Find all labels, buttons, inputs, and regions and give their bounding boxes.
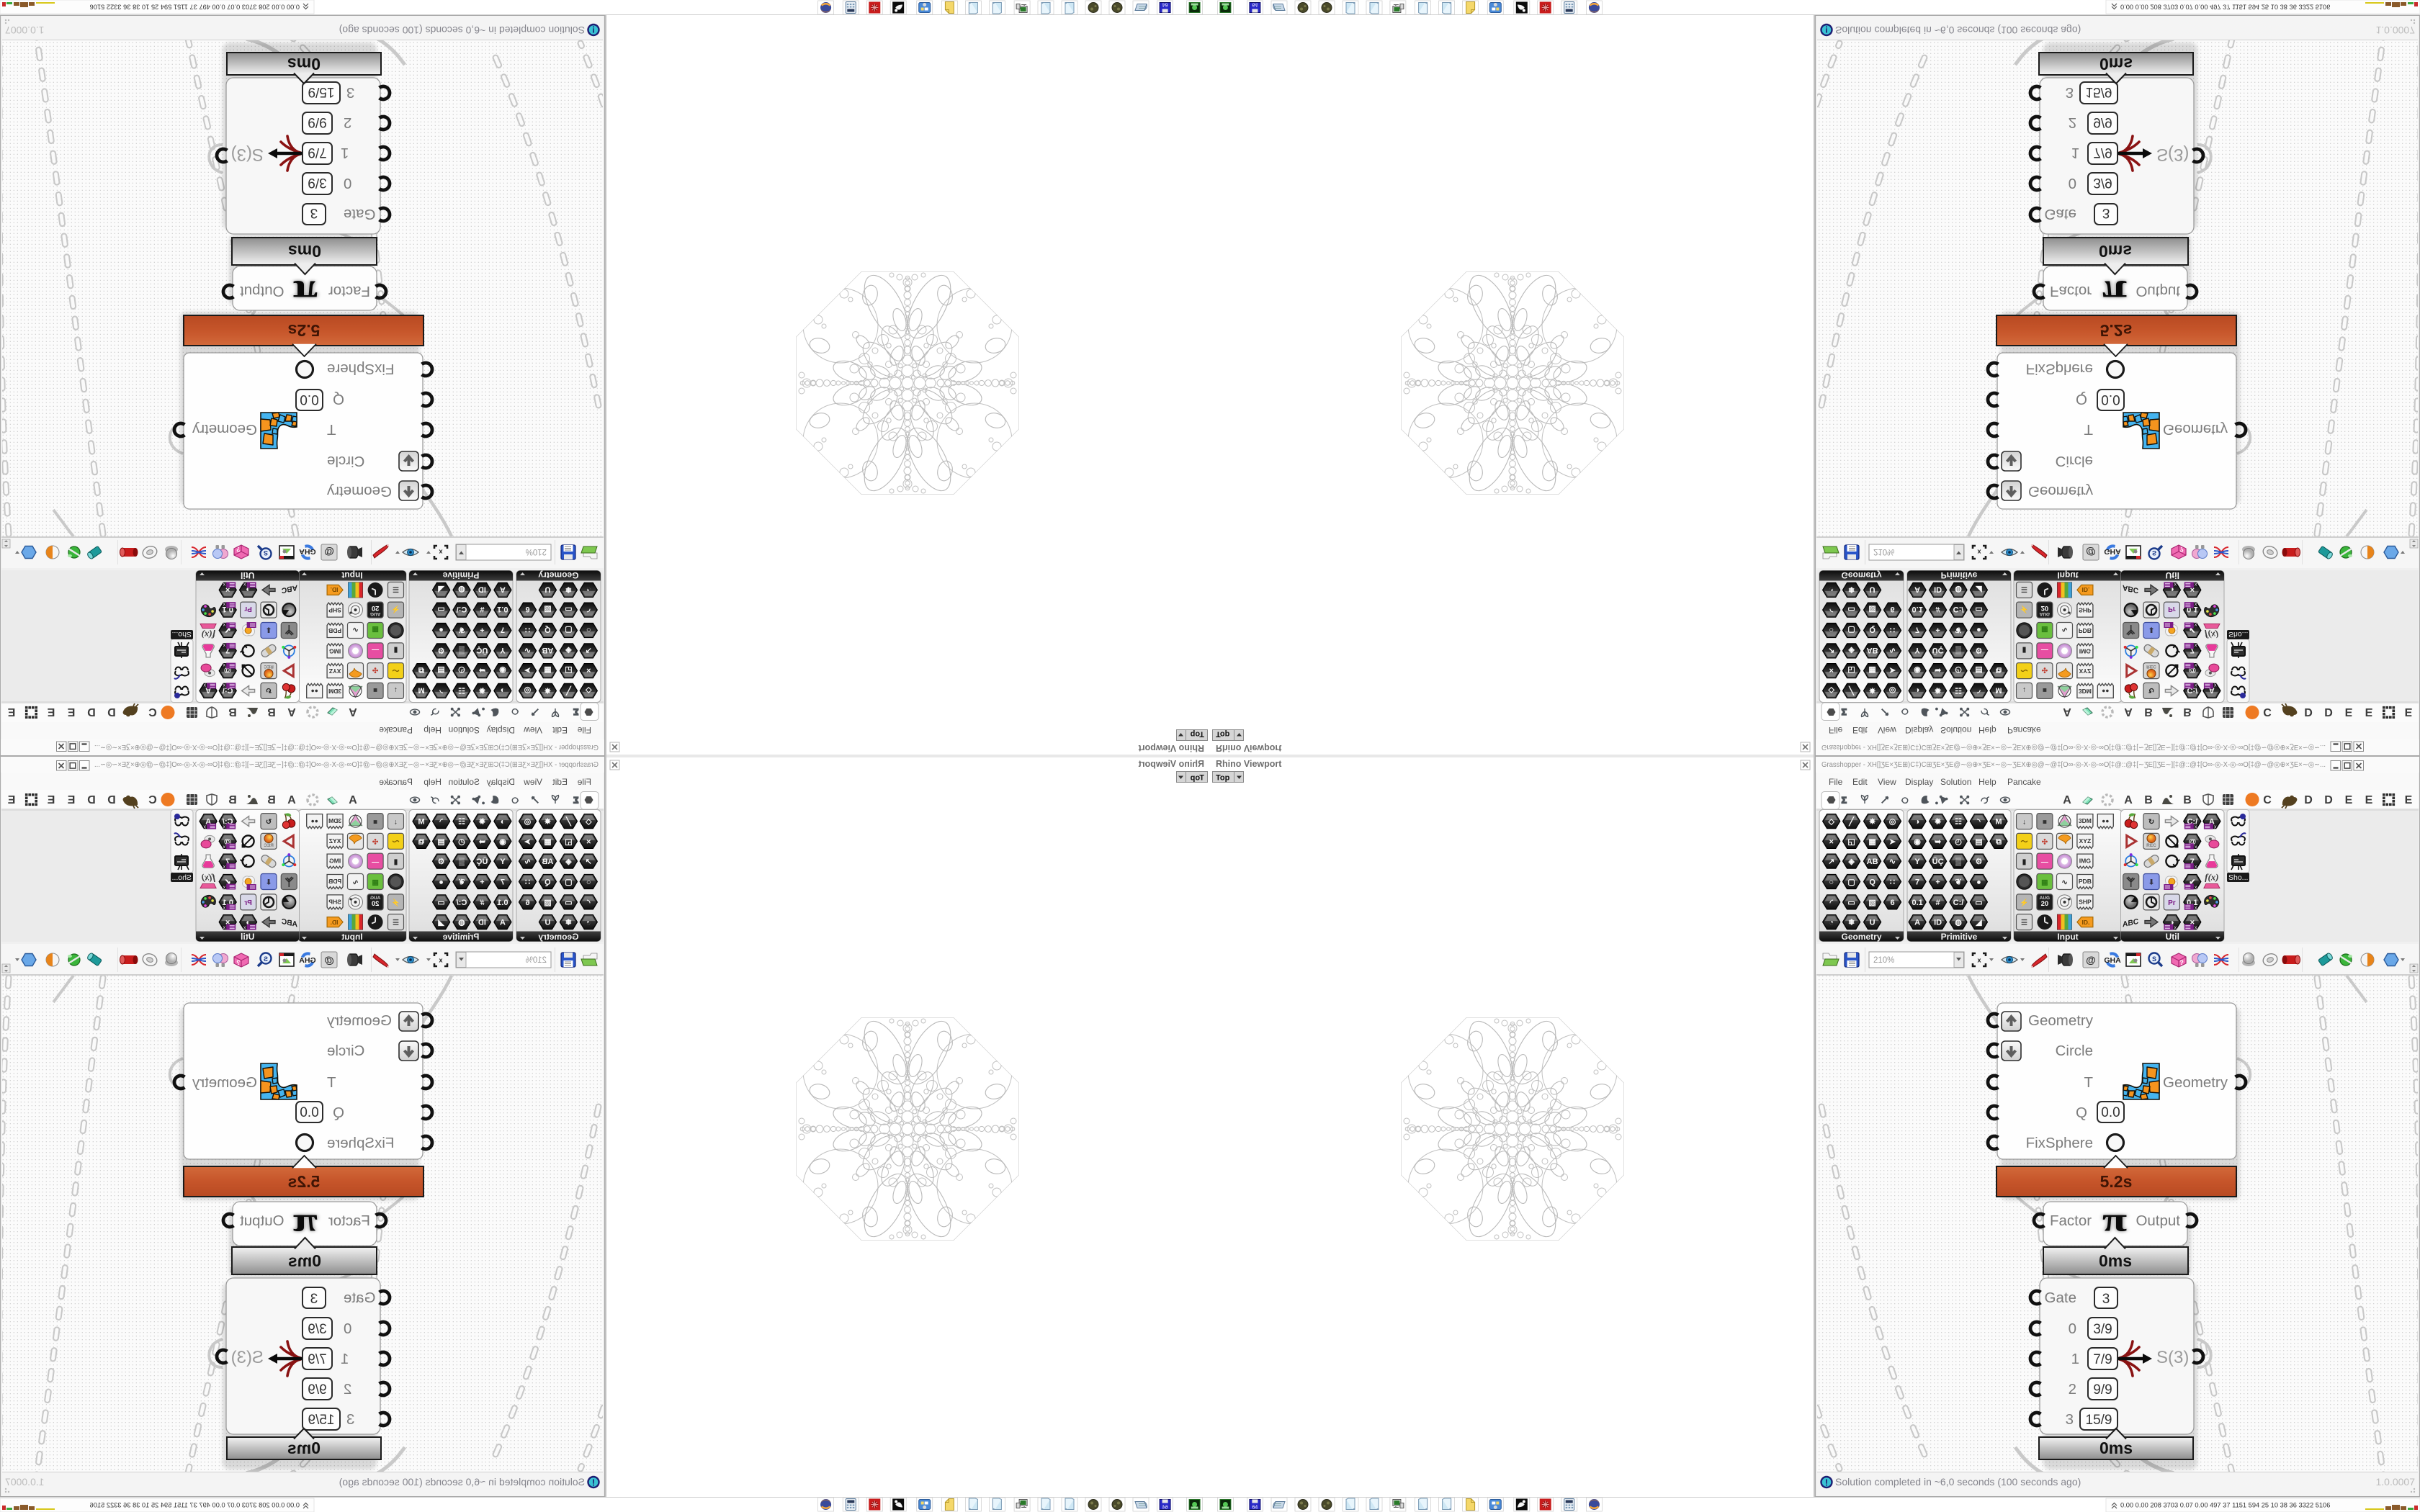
svg-text:C: C: [2263, 794, 2272, 806]
svg-text:FixSphere: FixSphere: [2026, 1135, 2093, 1151]
svg-text:x..: x..: [2195, 843, 2200, 850]
svg-text:T: T: [2084, 1074, 2093, 1091]
svg-text:∿: ∿: [2061, 879, 2067, 887]
svg-text:GHA: GHA: [2104, 956, 2121, 965]
svg-text:f(x): f(x): [2205, 872, 2219, 883]
svg-text:Geometry: Geometry: [2163, 1074, 2228, 1091]
svg-text:■: ■: [2043, 819, 2047, 827]
svg-text:Q: Q: [1869, 878, 1875, 887]
svg-text:◍: ◍: [1955, 919, 1962, 927]
svg-text:∷: ∷: [1890, 878, 1895, 887]
svg-text:0ms: 0ms: [2099, 1439, 2133, 1457]
svg-text:▧: ▧: [1868, 899, 1875, 907]
svg-text:Sho...: Sho...: [2228, 873, 2248, 882]
svg-text:E: E: [2365, 794, 2373, 806]
svg-text:×: ×: [1829, 837, 1833, 846]
svg-text:☷: ☷: [1955, 818, 1962, 827]
svg-text:☰: ☰: [2021, 919, 2027, 927]
svg-text:B: B: [2144, 794, 2153, 806]
svg-text:9/9: 9/9: [2093, 1382, 2112, 1398]
svg-text:S: S: [2152, 955, 2156, 963]
svg-text:B: B: [2183, 794, 2192, 806]
svg-text:0ms: 0ms: [2099, 1251, 2132, 1270]
svg-text:7: 7: [1915, 878, 1919, 887]
svg-text:○: ○: [1829, 878, 1834, 887]
svg-text:➥: ➥: [1935, 837, 1942, 846]
svg-text:Factor: Factor: [2050, 1212, 2092, 1229]
svg-text:↗: ↗: [1828, 858, 1834, 866]
svg-text:M: M: [1995, 818, 2002, 827]
svg-text:1: 1: [2071, 1351, 2079, 1367]
svg-text:0.00 0.00 208 3703 0.07 0.00 4: 0.00 0.00 208 3703 0.07 0.00 497 37 1151…: [2120, 1502, 2330, 1509]
svg-text:0.0: 0.0: [2101, 1105, 2120, 1120]
svg-text:◔: ◔: [1829, 919, 1834, 927]
svg-text:▭: ▭: [1975, 899, 1982, 907]
svg-text:Solution completed in ~6,0 sec: Solution completed in ~6,0 seconds (100 …: [1835, 1476, 2081, 1488]
svg-text:?: ?: [2179, 959, 2184, 966]
svg-text:ÜÇ: ÜÇ: [1932, 857, 1944, 866]
svg-text:◝: ◝: [1976, 818, 1981, 827]
svg-text:A: A: [2063, 794, 2071, 806]
svg-text:2: 2: [2069, 1381, 2076, 1398]
svg-text:@: @: [2086, 954, 2096, 966]
svg-text:✸: ✸: [1868, 818, 1876, 827]
svg-text:ID: ID: [1934, 919, 1942, 927]
svg-text:15/9: 15/9: [2086, 1413, 2112, 1428]
svg-text:▢: ▢: [1847, 878, 1855, 887]
svg-text:XYZ: XYZ: [2079, 837, 2092, 845]
svg-text:C:/: C:/: [1953, 899, 1964, 907]
svg-text:◇: ◇: [1827, 818, 1834, 827]
svg-text:❅: ❅: [1848, 919, 1855, 927]
svg-text:Primitive: Primitive: [1941, 932, 1978, 942]
svg-text:◉: ◉: [1914, 837, 1921, 846]
svg-text:▮: ▮: [2022, 858, 2027, 866]
svg-text:A: A: [1914, 919, 1920, 927]
svg-text:3: 3: [2102, 1292, 2110, 1307]
svg-text:5.2s: 5.2s: [2100, 1172, 2133, 1191]
svg-text:▒: ▒: [1955, 857, 1961, 866]
svg-text:Util: Util: [2166, 932, 2179, 942]
svg-text:✣: ✣: [2042, 838, 2048, 846]
svg-text:REC: REC: [2146, 843, 2156, 848]
svg-text:Grasshopper - XH[]ƷE×ƷE⊞)C‡)C⊞: Grasshopper - XH[]ƷE×ƷE⊞)C‡)C⊞ƷE×ƷE@∼◎⊕×…: [1821, 760, 2326, 769]
svg-text:x..: x..: [2195, 863, 2200, 870]
svg-text:0: 0: [2069, 1320, 2076, 1337]
svg-text:◎: ◎: [1889, 818, 1896, 827]
svg-text:Help: Help: [1978, 777, 1996, 787]
svg-text:◢: ◢: [1975, 919, 1982, 927]
svg-text:Gate: Gate: [2045, 1290, 2076, 1306]
svg-text:◜: ◜: [1829, 899, 1834, 907]
svg-text:x..: x..: [2174, 924, 2179, 931]
svg-text:Top: Top: [1216, 774, 1230, 783]
svg-text:▤: ▤: [1975, 837, 1982, 846]
svg-text:x..: x..: [2195, 824, 2200, 830]
svg-text:Pr: Pr: [2168, 899, 2176, 907]
svg-text:π: π: [2102, 1201, 2127, 1238]
svg-text:E: E: [2405, 794, 2413, 806]
svg-text:Rhino Viewport: Rhino Viewport: [1216, 759, 1282, 769]
svg-text:⚙: ⚙: [1975, 858, 1982, 866]
svg-text:◈: ◈: [1847, 858, 1855, 866]
svg-text:●: ●: [1976, 878, 1981, 887]
svg-text:Σ: Σ: [1842, 795, 1847, 805]
svg-text:〜: 〜: [2021, 838, 2028, 846]
svg-text:Output: Output: [2136, 1212, 2180, 1229]
svg-text:64: 64: [1252, 1506, 1258, 1511]
svg-text:↓: ↓: [2022, 819, 2026, 827]
svg-text:◱: ◱: [1847, 837, 1855, 846]
svg-text:3/9: 3/9: [2093, 1322, 2112, 1337]
svg-text:x..: x..: [2195, 904, 2200, 911]
svg-text:3DM: 3DM: [2079, 817, 2092, 824]
svg-text:3: 3: [2066, 1411, 2074, 1428]
svg-text:⚡: ⚡: [2020, 898, 2028, 907]
svg-text:Y: Y: [1914, 858, 1920, 866]
svg-text:⧉: ⧉: [1996, 837, 2002, 846]
svg-text:x..: x..: [2214, 824, 2220, 830]
svg-text:0.1: 0.1: [1912, 899, 1922, 907]
svg-text:x..: x..: [2195, 884, 2200, 891]
svg-text:Circle: Circle: [2056, 1043, 2093, 1059]
svg-text:—: —: [2041, 858, 2048, 866]
svg-text:U: U: [1870, 919, 1875, 927]
svg-text:View: View: [1878, 777, 1896, 787]
svg-text:Edit: Edit: [1852, 777, 1868, 787]
svg-text:S(3): S(3): [2156, 1348, 2189, 1367]
svg-text:Geometry: Geometry: [1841, 932, 1881, 942]
svg-text:▦: ▦: [2041, 879, 2048, 887]
svg-text:SHP: SHP: [2079, 898, 2092, 905]
svg-text:▦: ▦: [1868, 837, 1875, 846]
svg-text:E: E: [2345, 794, 2353, 806]
svg-text:7/9: 7/9: [2093, 1352, 2112, 1367]
svg-text:●●: ●●: [2102, 817, 2109, 824]
svg-text:❦: ❦: [1955, 878, 1961, 887]
svg-text:#: #: [1936, 899, 1940, 907]
svg-text:↻: ↻: [2148, 819, 2154, 827]
svg-text:20: 20: [2041, 900, 2049, 908]
svg-text:x..: x..: [2195, 924, 2200, 931]
svg-text:∿: ∿: [1889, 858, 1896, 866]
svg-text:A: A: [2124, 794, 2133, 806]
svg-text:Input: Input: [2057, 932, 2078, 942]
svg-text:IMG: IMG: [2079, 858, 2092, 865]
svg-text:!: !: [1825, 1477, 1828, 1488]
svg-text:+: +: [1935, 878, 1940, 887]
svg-text:PDB: PDB: [2079, 878, 2092, 885]
svg-text:Pancake: Pancake: [2007, 777, 2041, 787]
svg-text:Solution: Solution: [1940, 777, 1971, 787]
svg-text:D: D: [2324, 794, 2333, 806]
svg-text:Q: Q: [2076, 1104, 2087, 1121]
svg-text:ID.: ID.: [2081, 919, 2089, 926]
svg-text:Geometry: Geometry: [2028, 1012, 2094, 1029]
svg-text:210%: 210%: [1873, 956, 1894, 965]
svg-text:◑: ◑: [1915, 818, 1920, 827]
svg-text:✹: ✹: [1934, 818, 1942, 827]
svg-text:1.0.0007: 1.0.0007: [2376, 1476, 2416, 1488]
svg-text:File: File: [1829, 777, 1843, 787]
svg-text:➤: ➤: [1889, 837, 1896, 846]
svg-text:D: D: [2304, 794, 2313, 806]
svg-text:▭: ▭: [1847, 899, 1855, 907]
svg-text:x: x: [1977, 957, 1981, 964]
svg-text:◴: ◴: [1955, 837, 1962, 846]
svg-text:6: 6: [1890, 899, 1894, 907]
svg-text:⬇: ⬇: [2148, 879, 2154, 887]
svg-text:AB: AB: [1867, 858, 1878, 866]
svg-text:Display: Display: [1905, 777, 1933, 787]
